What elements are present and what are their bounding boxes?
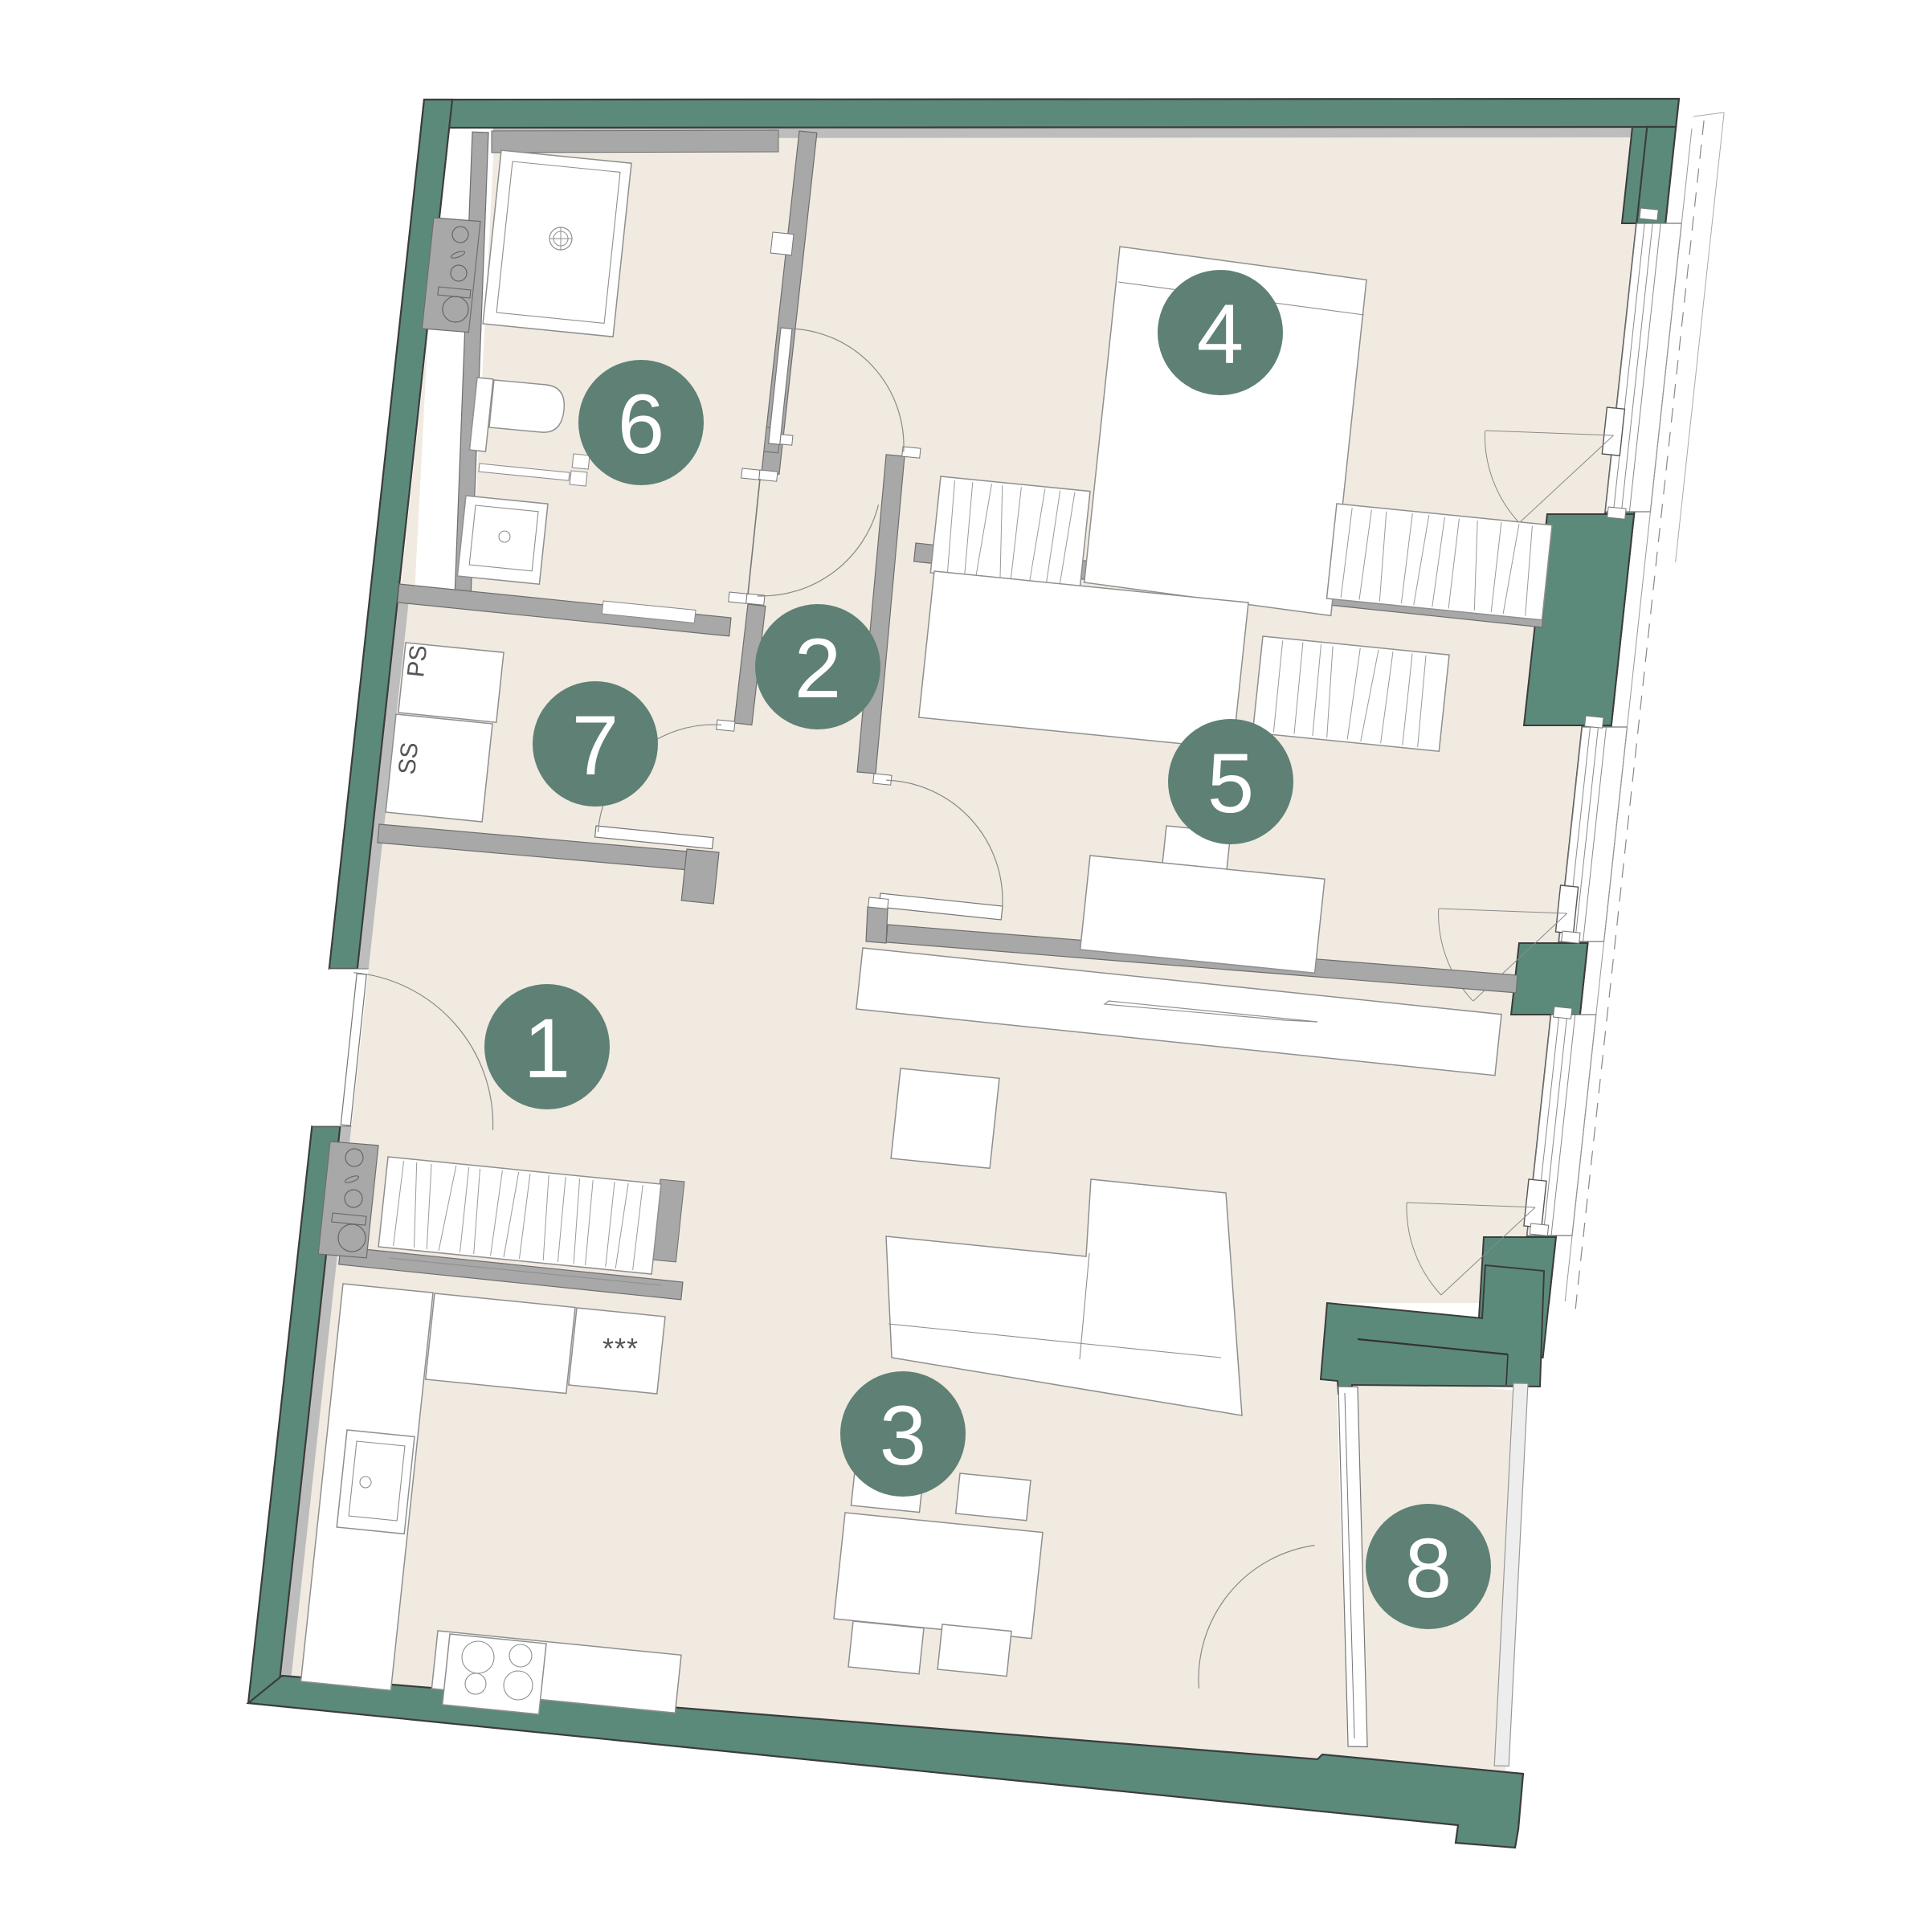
svg-text:5: 5 [1207,737,1254,831]
svg-text:PS: PS [402,643,432,678]
svg-text:3: 3 [880,1389,926,1483]
svg-text:6: 6 [618,378,664,472]
svg-text:7: 7 [572,699,619,793]
svg-text:SS: SS [394,741,423,775]
svg-text:4: 4 [1197,288,1244,382]
svg-text:***: *** [602,1332,639,1365]
svg-text:2: 2 [794,622,841,716]
svg-text:1: 1 [524,1002,570,1096]
svg-text:8: 8 [1405,1522,1452,1615]
